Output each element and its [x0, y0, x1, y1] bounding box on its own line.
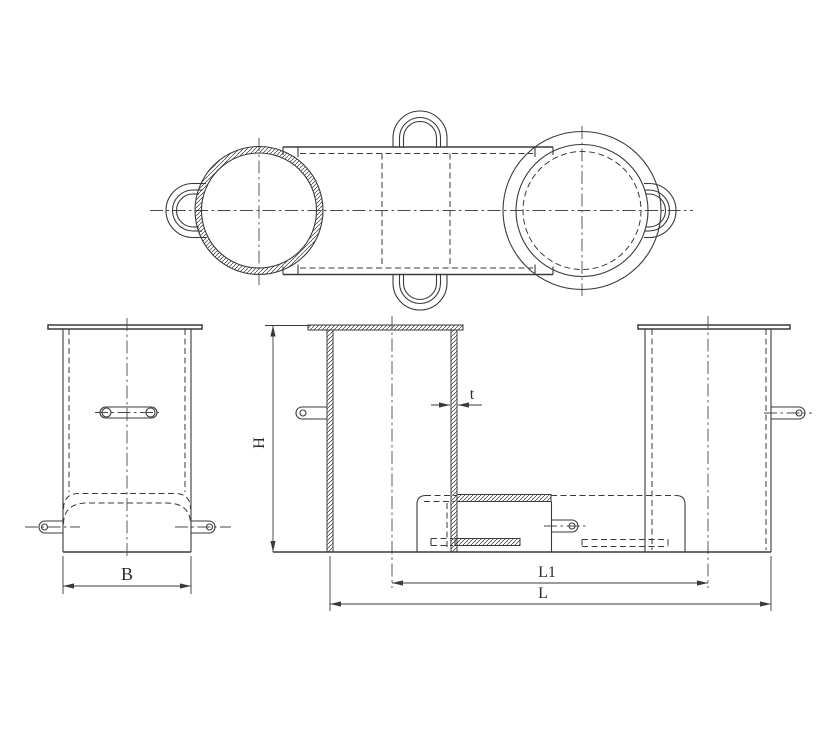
dim-label-l1: L1: [538, 564, 556, 581]
side-view-front-lug: [95, 407, 162, 418]
technical-drawing-canvas: B H t: [0, 0, 840, 729]
base-rib-section: [455, 539, 520, 546]
section-middle-lug: [544, 520, 586, 532]
plan-bottom-lug: [393, 275, 447, 311]
plan-right-post: [503, 126, 661, 296]
rear-post-view: [638, 316, 812, 588]
dim-label-b: B: [121, 564, 133, 584]
base-top-plate-section: [457, 495, 551, 502]
side-view-flange: [48, 325, 202, 329]
section-right-wall: [451, 330, 457, 552]
section-flange: [308, 325, 463, 330]
section-left-lug: [296, 407, 327, 419]
dimension-h: H: [251, 326, 309, 553]
side-view: B: [25, 318, 231, 594]
dim-label-l: L: [538, 585, 548, 602]
dimension-b: B: [63, 556, 191, 594]
plan-top-lug: [393, 111, 447, 147]
section-view: H t: [251, 316, 685, 588]
plan-left-post-section: [195, 138, 323, 285]
dimension-l1: L1: [392, 564, 708, 583]
dim-label-t: t: [470, 386, 475, 403]
dim-label-h: H: [251, 437, 268, 449]
section-left-wall: [327, 330, 333, 552]
side-view-left-lug: [25, 521, 80, 533]
rear-post-flange: [638, 325, 790, 329]
bollard-drawing: B H t: [0, 0, 840, 729]
side-view-right-lug: [175, 521, 231, 533]
plan-view: [150, 111, 693, 310]
